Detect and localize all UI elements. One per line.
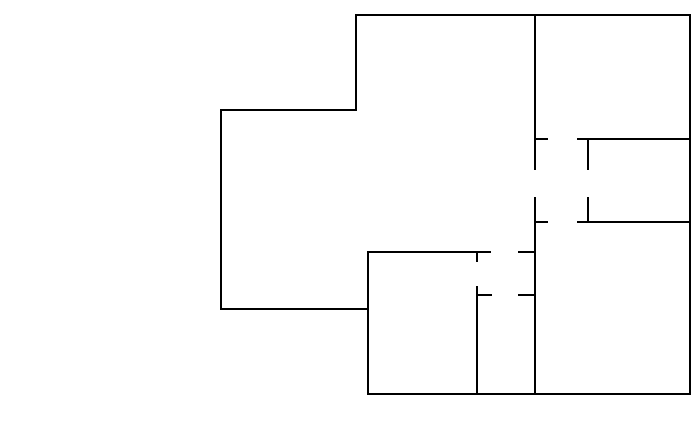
floor-plan bbox=[0, 0, 700, 446]
floor-plan-canvas bbox=[0, 0, 700, 446]
